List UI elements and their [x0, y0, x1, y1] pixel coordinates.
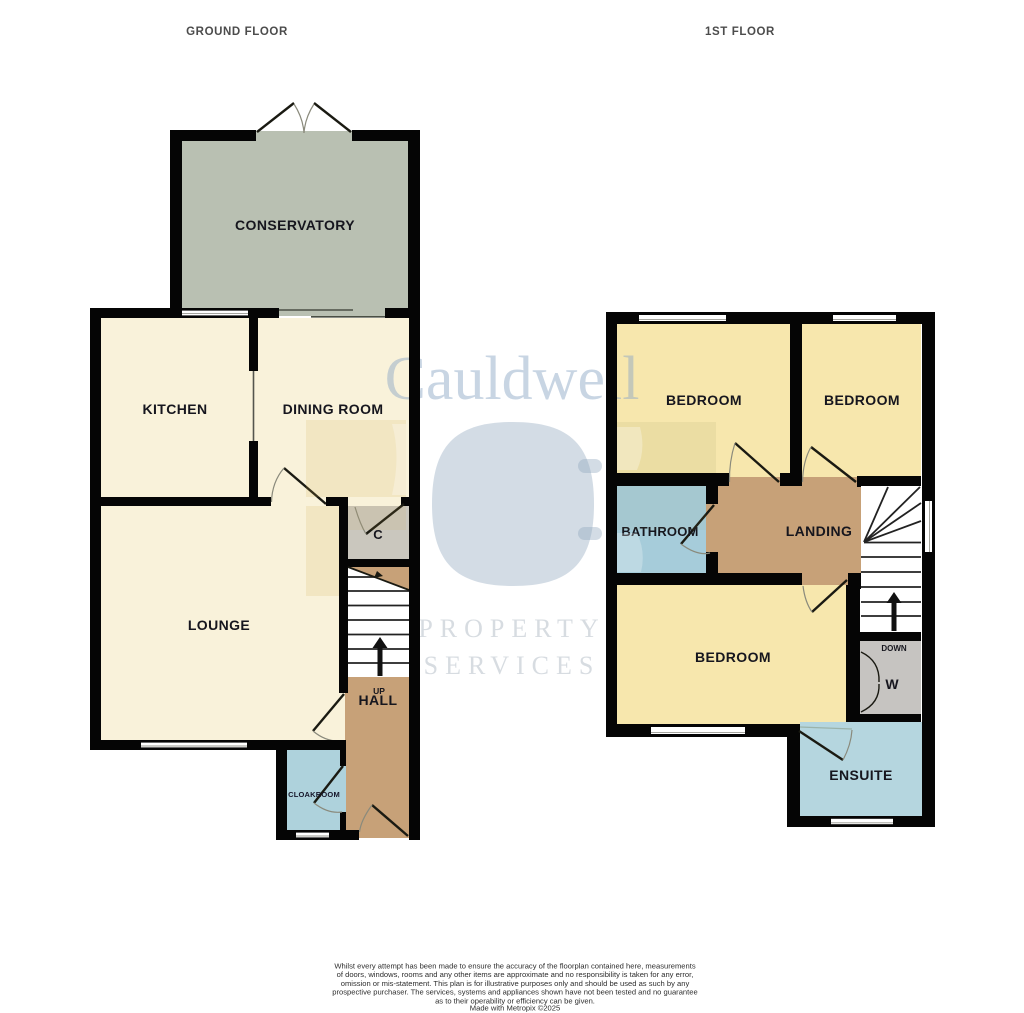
svg-text:LANDING: LANDING: [786, 523, 853, 539]
svg-text:BEDROOM: BEDROOM: [824, 392, 900, 408]
svg-text:DINING ROOM: DINING ROOM: [283, 401, 384, 417]
svg-text:Whilst every attempt has been: Whilst every attempt has been made to en…: [334, 962, 696, 971]
svg-text:BEDROOM: BEDROOM: [666, 392, 742, 408]
svg-text:SERVICES: SERVICES: [424, 651, 601, 680]
svg-text:Cauldwell: Cauldwell: [385, 345, 640, 413]
svg-text:DOWN: DOWN: [881, 644, 907, 653]
svg-text:GROUND FLOOR: GROUND FLOOR: [186, 26, 288, 38]
svg-text:HALL: HALL: [359, 692, 398, 708]
svg-text:CONSERVATORY: CONSERVATORY: [235, 217, 355, 233]
svg-text:of doors, windows, rooms and a: of doors, windows, rooms and any other i…: [337, 970, 694, 979]
svg-text:Made with Metropix ©2025: Made with Metropix ©2025: [470, 1004, 560, 1013]
svg-text:KITCHEN: KITCHEN: [142, 401, 207, 417]
svg-text:W: W: [885, 676, 899, 692]
svg-text:prospective purchaser. The ser: prospective purchaser. The services, sys…: [332, 988, 697, 997]
svg-text:CLOAKROOM: CLOAKROOM: [288, 790, 340, 799]
svg-text:BEDROOM: BEDROOM: [695, 649, 771, 665]
svg-text:PROPERTY: PROPERTY: [418, 614, 605, 643]
svg-text:LOUNGE: LOUNGE: [188, 617, 250, 633]
svg-text:ENSUITE: ENSUITE: [829, 767, 892, 783]
svg-text:omission or mis-statement. Thi: omission or mis-statement. This plan is …: [341, 979, 690, 988]
svg-text:1ST FLOOR: 1ST FLOOR: [705, 26, 775, 38]
